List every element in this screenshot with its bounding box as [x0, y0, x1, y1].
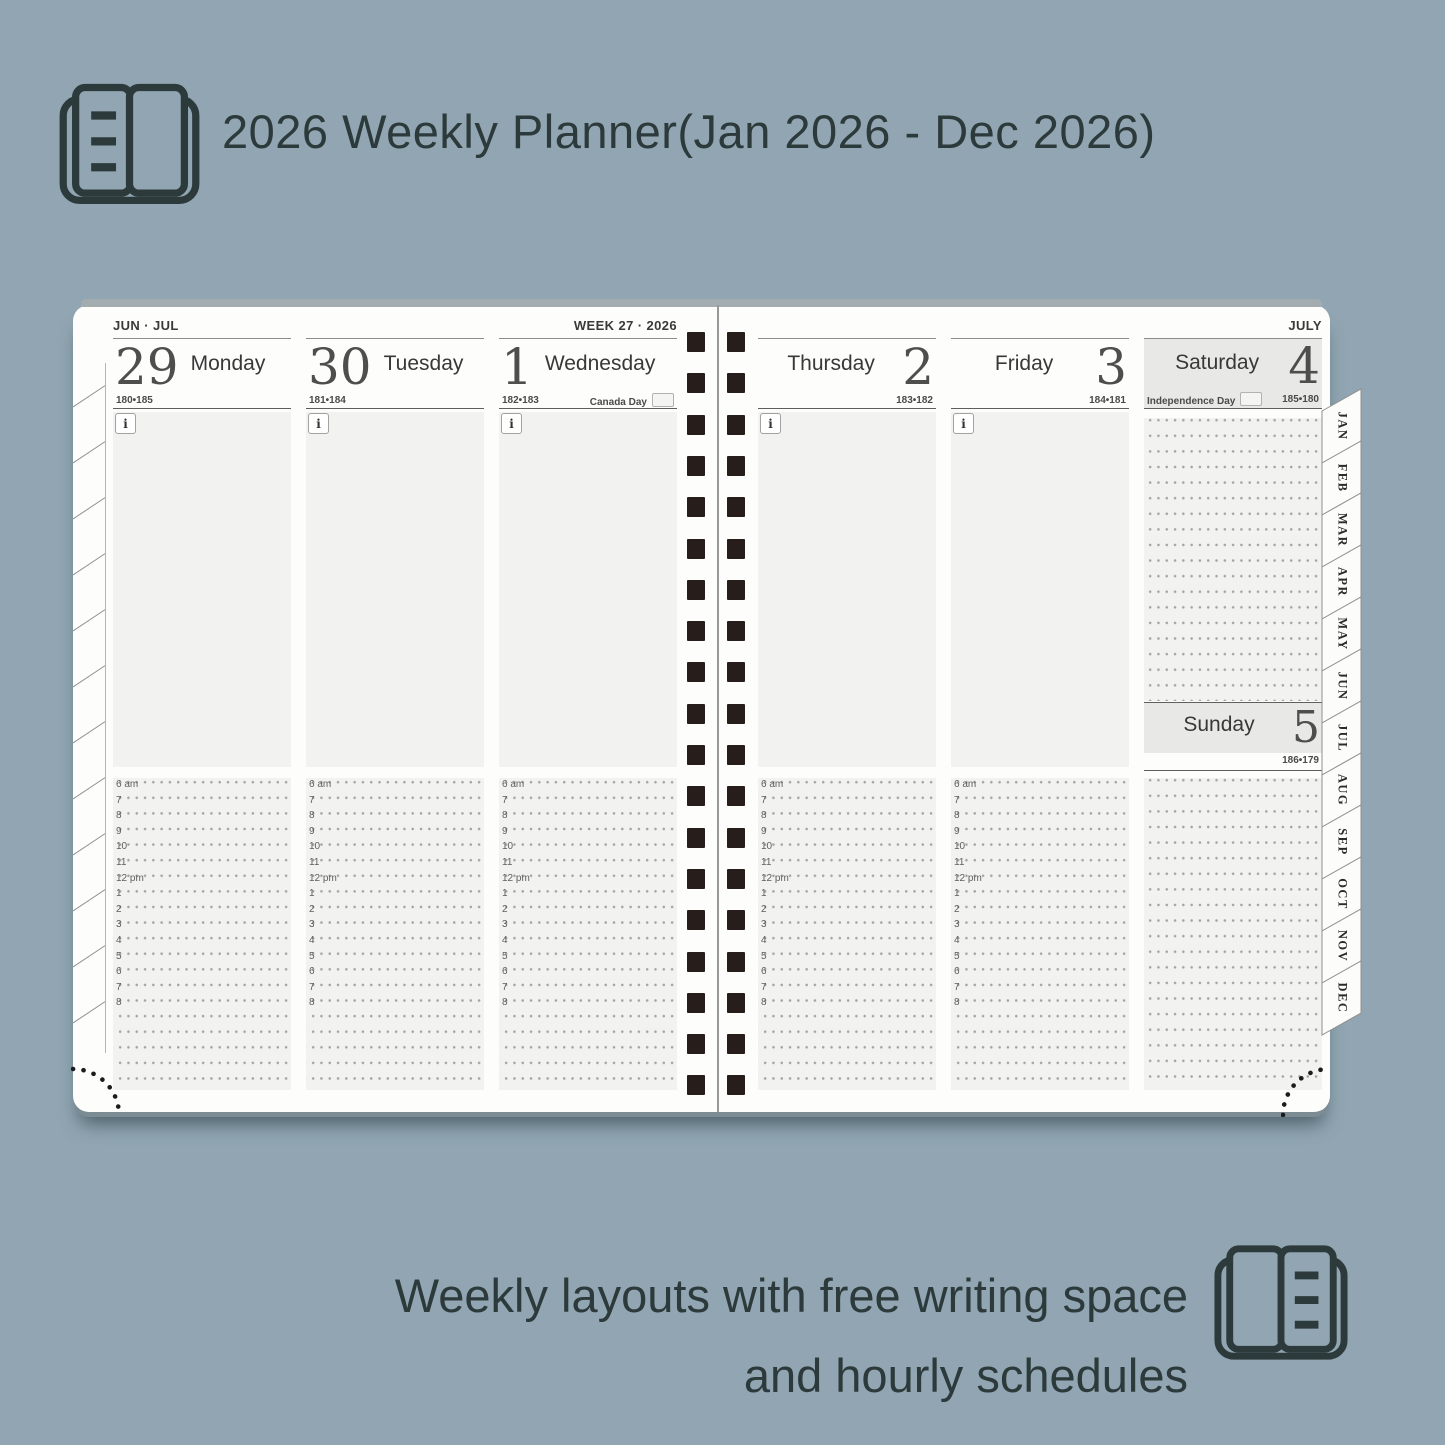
day-header: 29Monday — [115, 342, 289, 392]
hour-label: 5 — [113, 950, 291, 966]
binding-hole — [727, 704, 745, 724]
holiday-label: Canada Day — [590, 393, 674, 408]
binding-hole — [687, 332, 705, 352]
hour-label: 4 — [113, 934, 291, 950]
hour-label: 12 pm — [306, 872, 484, 888]
hourly-schedule: 6 am789101112 pm12345678 — [499, 778, 677, 1090]
binding-hole — [727, 952, 745, 972]
binding-hole — [727, 332, 745, 352]
binding-hole — [687, 704, 705, 724]
month-tab-label: JUN — [1336, 672, 1350, 701]
flag-icon — [1240, 392, 1262, 406]
info-icon: i — [501, 413, 522, 434]
binding-hole — [727, 1075, 745, 1095]
hour-label: 11 — [951, 856, 1129, 872]
hour-label: 8 — [306, 809, 484, 825]
hour-label: 7 — [951, 794, 1129, 810]
day-of-year: 181•184 — [309, 395, 346, 406]
divider — [1144, 408, 1322, 409]
day-of-year: 183•182 — [896, 395, 933, 406]
hour-label: 10 — [499, 840, 677, 856]
binding-hole — [727, 497, 745, 517]
hour-label: 8 — [951, 809, 1129, 825]
binding-hole — [687, 662, 705, 682]
binding-hole — [727, 869, 745, 889]
page-gutter — [717, 305, 719, 1112]
sunday-header: Sunday5 — [1144, 703, 1322, 753]
month-tab-label: MAY — [1336, 617, 1350, 650]
hour-label: 8 — [113, 996, 291, 1012]
hour-label: 1 — [951, 887, 1129, 903]
hour-label: 7 — [499, 794, 677, 810]
hour-label: 8 — [113, 809, 291, 825]
hour-label: 7 — [499, 981, 677, 997]
day-header: 1Wednesday — [501, 342, 675, 392]
hour-label: 6 am — [951, 778, 1129, 794]
hour-label: 6 am — [758, 778, 936, 794]
month-tab-label: MAR — [1336, 513, 1350, 547]
month-tab-label: OCT — [1336, 878, 1350, 910]
hour-label: 2 — [758, 903, 936, 919]
hourly-schedule: 6 am789101112 pm12345678 — [951, 778, 1129, 1090]
hour-label: 9 — [951, 825, 1129, 841]
hour-label: 7 — [113, 981, 291, 997]
day-column-wednesday: 1Wednesday182•183Canada Dayi6 am78910111… — [499, 305, 677, 1112]
day-name: Sunday — [1146, 713, 1292, 737]
binding-hole — [687, 497, 705, 517]
hour-label: 8 — [758, 809, 936, 825]
hour-label: 4 — [758, 934, 936, 950]
day-column-weekend: Saturday4Independence Day185•180Sunday51… — [1144, 305, 1322, 1112]
divider — [951, 408, 1129, 409]
hour-label: 6 — [306, 965, 484, 981]
hour-label: 4 — [306, 934, 484, 950]
day-column-friday: Friday3184•181i6 am789101112 pm12345678 — [951, 305, 1129, 1112]
day-header: Saturday4 — [1146, 341, 1320, 391]
binding-hole — [687, 456, 705, 476]
divider — [499, 408, 677, 409]
corner-perforation-right — [1281, 1063, 1333, 1117]
hour-label: 6 am — [306, 778, 484, 794]
divider — [306, 408, 484, 409]
month-tab-label: AUG — [1336, 774, 1350, 806]
hour-label: 7 — [113, 794, 291, 810]
hour-label: 10 — [951, 840, 1129, 856]
binding-hole — [687, 828, 705, 848]
day-column-tuesday: 30Tuesday181•184i6 am789101112 pm1234567… — [306, 305, 484, 1112]
info-icon: i — [953, 413, 974, 434]
day-name: Tuesday — [384, 352, 464, 376]
binding-hole — [687, 786, 705, 806]
hour-label: 7 — [758, 794, 936, 810]
binding-hole — [687, 1075, 705, 1095]
notes-area — [113, 412, 291, 767]
hour-label: 7 — [306, 981, 484, 997]
binding-hole — [687, 745, 705, 765]
hour-label: 12 pm — [499, 872, 677, 888]
hour-label: 7 — [951, 981, 1129, 997]
hourly-schedule: 6 am789101112 pm12345678 — [113, 778, 291, 1090]
page-title: 2026 Weekly Planner(Jan 2026 - Dec 2026) — [222, 104, 1156, 159]
day-date: 3 — [1095, 343, 1127, 391]
holiday-row: Independence Day185•180 — [1147, 392, 1319, 406]
hour-label: 9 — [113, 825, 291, 841]
day-of-year: 180•185 — [116, 395, 153, 406]
binding-hole — [687, 1034, 705, 1054]
hour-label: 7 — [758, 981, 936, 997]
hour-label: 2 — [951, 903, 1129, 919]
day-of-year-row: 181•184 — [309, 393, 481, 407]
day-of-year: 184•181 — [1089, 395, 1126, 406]
binding-hole — [727, 910, 745, 930]
hour-label: 9 — [499, 825, 677, 841]
hour-label: 8 — [951, 996, 1129, 1012]
day-of-year-row: 183•182 — [761, 393, 933, 407]
day-header: Friday3 — [953, 342, 1127, 392]
hour-label: 11 — [758, 856, 936, 872]
day-column-monday: 29Monday180•185i6 am789101112 pm12345678 — [113, 305, 291, 1112]
hour-label: 3 — [758, 918, 936, 934]
footer-caption: Weekly layouts with free writing space a… — [395, 1256, 1188, 1416]
notes-area — [758, 412, 936, 767]
notes-area — [306, 412, 484, 767]
hour-label: 6 am — [113, 778, 291, 794]
hour-label: 6 — [758, 965, 936, 981]
hour-label: 10 — [113, 840, 291, 856]
hour-label: 3 — [113, 918, 291, 934]
binding-hole — [727, 373, 745, 393]
hour-label: 1 — [758, 887, 936, 903]
day-of-year-row: 182•183Canada Day — [502, 393, 674, 407]
binding-hole — [727, 539, 745, 559]
day-header: Thursday2 — [760, 342, 934, 392]
binding-hole — [727, 745, 745, 765]
hour-label: 9 — [758, 825, 936, 841]
hour-label: 7 — [306, 794, 484, 810]
hourly-schedule: 6 am789101112 pm12345678 — [758, 778, 936, 1090]
hour-label: 10 — [306, 840, 484, 856]
planner-spread: JUN · JULWEEK 27 · 202629Monday180•185i6… — [73, 305, 1330, 1112]
footer-line2: and hourly schedules — [395, 1336, 1188, 1416]
day-name: Thursday — [760, 352, 902, 376]
binding-hole — [687, 621, 705, 641]
binding-hole — [727, 662, 745, 682]
hour-label: 8 — [499, 996, 677, 1012]
day-date: 4 — [1288, 342, 1320, 390]
day-name: Friday — [953, 352, 1095, 376]
binding-hole — [687, 580, 705, 600]
day-of-year: 182•183 — [502, 395, 539, 406]
divider — [1144, 770, 1322, 771]
hour-label: 11 — [499, 856, 677, 872]
binding-hole — [727, 828, 745, 848]
hour-label: 5 — [306, 950, 484, 966]
hour-label: 3 — [951, 918, 1129, 934]
day-header: 30Tuesday — [308, 342, 482, 392]
day-of-year-row: 180•185 — [116, 393, 288, 407]
page-edge-hatch — [73, 363, 107, 1053]
binding-hole — [687, 869, 705, 889]
day-name: Monday — [191, 352, 266, 376]
hour-label: 5 — [499, 950, 677, 966]
binding-hole — [687, 993, 705, 1013]
day-name: Saturday — [1146, 351, 1288, 375]
hour-label: 8 — [758, 996, 936, 1012]
notes-area — [951, 412, 1129, 767]
hour-label: 5 — [951, 950, 1129, 966]
flag-icon — [652, 393, 674, 407]
info-icon: i — [760, 413, 781, 434]
divider — [113, 408, 291, 409]
hour-label: 8 — [306, 996, 484, 1012]
footer-line1: Weekly layouts with free writing space — [395, 1256, 1188, 1336]
hour-label: 3 — [306, 918, 484, 934]
hour-label: 5 — [758, 950, 936, 966]
saturday-notes-grid — [1144, 418, 1322, 701]
hour-label: 12 pm — [758, 872, 936, 888]
day-date: 5 — [1292, 704, 1320, 752]
saturday-header: Saturday4Independence Day185•180 — [1144, 339, 1322, 408]
month-tab-label: JUL — [1336, 724, 1350, 752]
hour-label: 2 — [113, 903, 291, 919]
binding-hole — [727, 993, 745, 1013]
day-of-year: 186•179 — [1147, 753, 1319, 769]
binding-hole — [687, 952, 705, 972]
binding-hole — [727, 1034, 745, 1054]
info-icon: i — [115, 413, 136, 434]
notes-area — [499, 412, 677, 767]
day-date: 29 — [115, 343, 179, 391]
hour-label: 1 — [113, 887, 291, 903]
open-planner-icon — [57, 82, 202, 207]
month-tab-label: JAN — [1336, 412, 1350, 441]
info-icon: i — [308, 413, 329, 434]
divider — [758, 408, 936, 409]
binding-hole — [727, 580, 745, 600]
binding-hole — [687, 373, 705, 393]
corner-perforation-left — [71, 1063, 123, 1117]
holiday-label: Independence Day — [1147, 392, 1262, 407]
day-column-thursday: Thursday2183•182i6 am789101112 pm1234567… — [758, 305, 936, 1112]
month-tab-label: DEC — [1336, 983, 1350, 1014]
binding-hole — [687, 910, 705, 930]
hour-label: 1 — [306, 887, 484, 903]
day-date: 2 — [902, 343, 934, 391]
hourly-schedule: 6 am789101112 pm12345678 — [306, 778, 484, 1090]
day-date: 30 — [308, 343, 372, 391]
month-tab-label: APR — [1336, 567, 1350, 597]
binding-hole — [727, 415, 745, 435]
day-date: 1 — [501, 343, 533, 391]
month-tab-label: SEP — [1336, 828, 1350, 855]
binding-hole — [687, 415, 705, 435]
binding-hole — [687, 539, 705, 559]
hour-label: 6 — [951, 965, 1129, 981]
month-tabs: JANFEBMARAPRMAYJUNJULAUGSEPOCTNOVDEC — [1321, 363, 1367, 1063]
hour-label: 6 — [499, 965, 677, 981]
binding-hole — [727, 456, 745, 476]
open-planner-icon — [1212, 1243, 1350, 1363]
month-tab-label: FEB — [1336, 464, 1350, 493]
hour-label: 2 — [306, 903, 484, 919]
hour-label: 12 pm — [113, 872, 291, 888]
hour-label: 2 — [499, 903, 677, 919]
hour-label: 11 — [306, 856, 484, 872]
binding-hole — [727, 786, 745, 806]
binding-hole — [727, 621, 745, 641]
hour-label: 3 — [499, 918, 677, 934]
month-tab-label: NOV — [1336, 930, 1350, 962]
hour-label: 4 — [499, 934, 677, 950]
day-of-year-row: 184•181 — [954, 393, 1126, 407]
hour-label: 6 — [113, 965, 291, 981]
hour-label: 8 — [499, 809, 677, 825]
hour-label: 10 — [758, 840, 936, 856]
sunday-notes-grid — [1144, 778, 1322, 1090]
day-of-year: 185•180 — [1282, 394, 1319, 405]
hour-label: 6 am — [499, 778, 677, 794]
hour-label: 9 — [306, 825, 484, 841]
hour-label: 11 — [113, 856, 291, 872]
hour-label: 12 pm — [951, 872, 1129, 888]
hour-label: 1 — [499, 887, 677, 903]
day-name: Wednesday — [545, 352, 656, 376]
hour-label: 4 — [951, 934, 1129, 950]
